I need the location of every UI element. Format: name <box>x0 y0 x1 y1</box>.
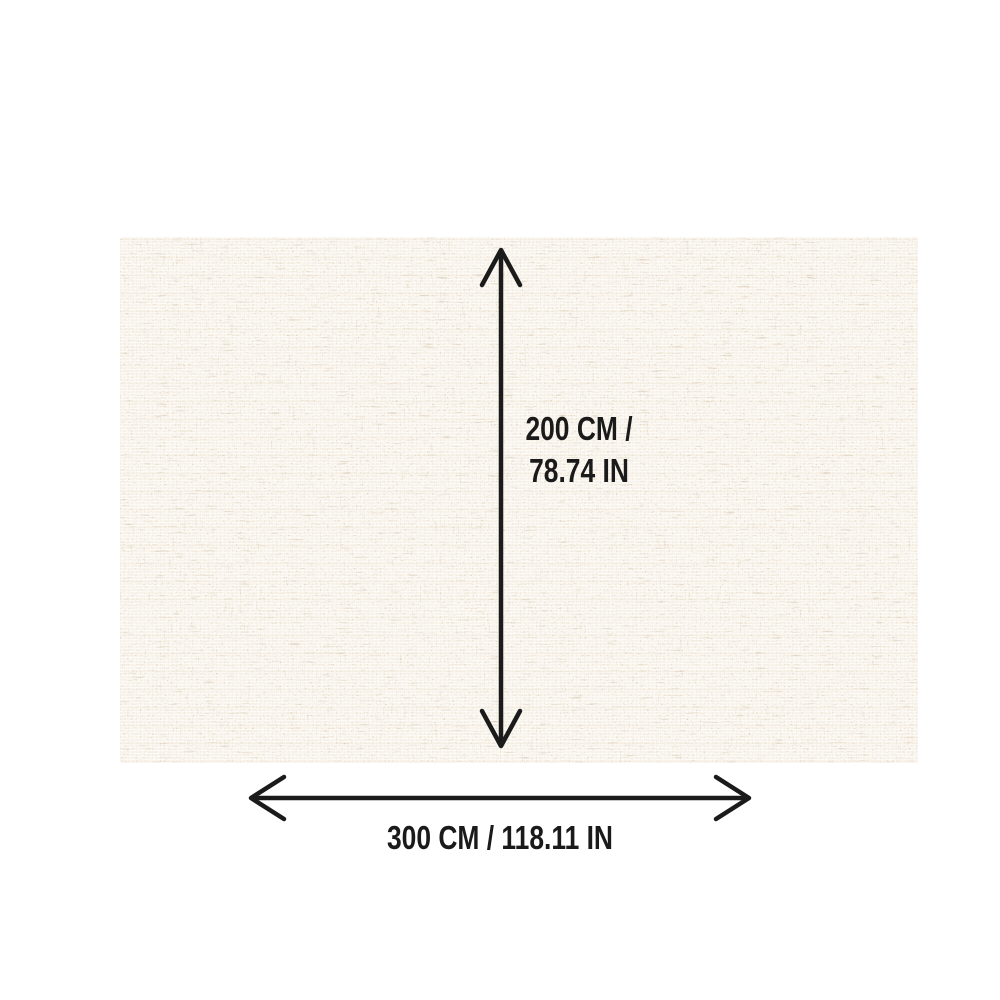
height-dimension-label: 200 CM / 78.74 IN <box>519 408 639 492</box>
width-dimension-label: 300 CM / 118.11 IN <box>340 821 660 855</box>
height-dimension-in: 78.74 IN <box>519 450 639 492</box>
vertical-dimension-arrow <box>482 250 520 746</box>
product-dimension-diagram: 200 CM / 78.74 IN 300 CM / 118.11 IN <box>0 0 1000 1000</box>
horizontal-dimension-arrow <box>251 777 749 819</box>
height-dimension-cm: 200 CM / <box>519 408 639 450</box>
